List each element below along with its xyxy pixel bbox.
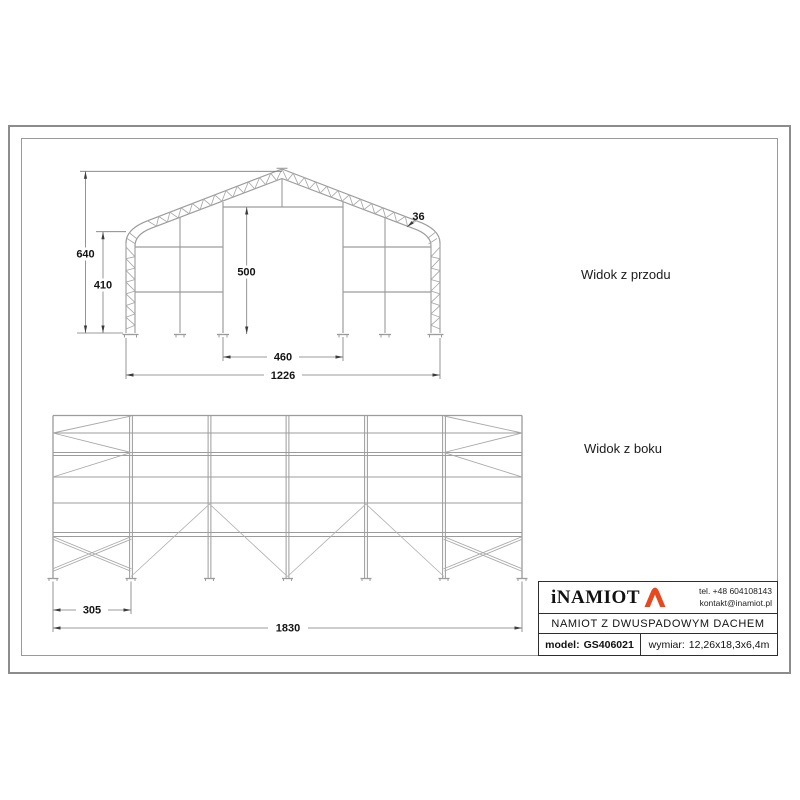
title-block: iNAMIOT tel. +48 604108143 kontakt@inami… — [538, 581, 778, 656]
dim-door-height: 500 — [237, 267, 255, 279]
dim-total-length: 1830 — [276, 623, 300, 635]
size-cell: wymiar: 12,26x18,3x6,4m — [641, 634, 777, 655]
dim-wall-height: 410 — [94, 280, 112, 292]
title-block-logo-row: iNAMIOT tel. +48 604108143 kontakt@inami… — [539, 582, 777, 614]
tent-logo-icon — [643, 587, 667, 608]
size-label: wymiar: — [649, 639, 685, 651]
dimension-labels: 640 410 500 460 1226 36 305 1830 — [73, 211, 425, 635]
contact-info: tel. +48 604108143 kontakt@inamiot.pl — [699, 586, 772, 608]
side-view-label: Widok z boku — [584, 441, 662, 456]
logo-text: iNAMIOT — [551, 588, 640, 607]
technical-drawing: 640 410 500 460 1226 36 305 1830 — [0, 0, 800, 800]
drawing-sheet: 640 410 500 460 1226 36 305 1830 Widok z… — [0, 0, 800, 800]
structure-lines — [48, 168, 528, 632]
dim-end-bay-width: 305 — [83, 605, 101, 617]
phone: tel. +48 604108143 — [699, 586, 772, 597]
email: kontakt@inamiot.pl — [699, 598, 772, 609]
dim-total-height: 640 — [76, 249, 94, 261]
model-label: model: — [545, 639, 579, 651]
dim-door-width: 460 — [274, 352, 292, 364]
model-cell: model: GS406021 — [539, 634, 641, 655]
dim-truss-depth: 36 — [412, 211, 424, 223]
model-value: GS406021 — [584, 639, 634, 651]
front-view-label: Widok z przodu — [581, 267, 671, 282]
size-value: 12,26x18,3x6,4m — [689, 639, 770, 651]
dim-total-width: 1226 — [271, 370, 295, 382]
product-name: NAMIOT Z DWUSPADOWYM DACHEM — [539, 614, 777, 634]
title-block-bottom-row: model: GS406021 wymiar: 12,26x18,3x6,4m — [539, 634, 777, 655]
